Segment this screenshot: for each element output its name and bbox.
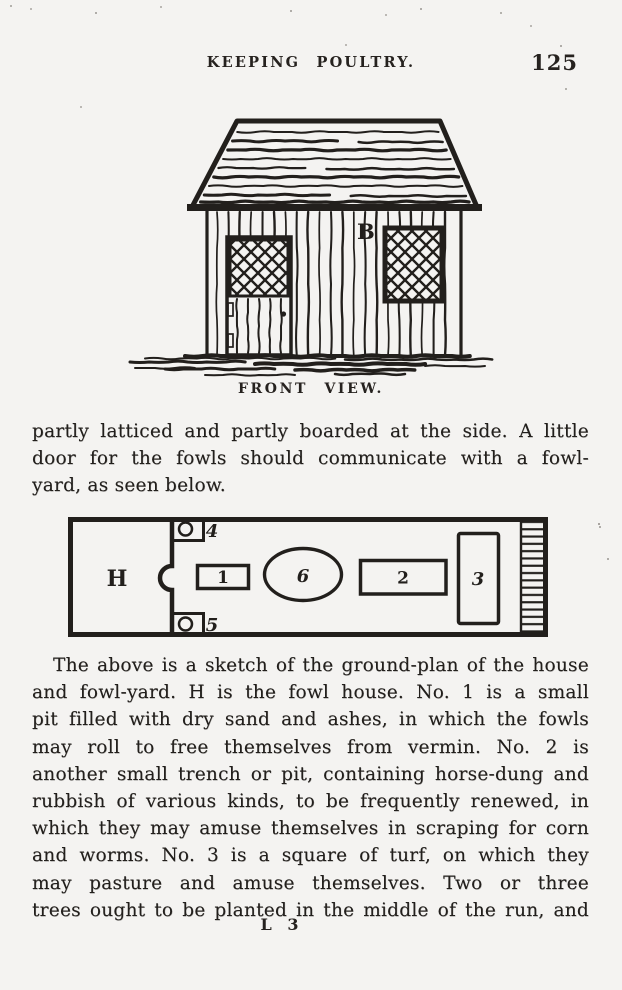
figure-stroke	[201, 201, 469, 202]
figure-stroke	[359, 141, 443, 142]
scan-speckles	[10, 5, 12, 7]
figure-stroke	[216, 212, 217, 356]
plan-label-3: 3	[472, 569, 485, 590]
figure-stroke	[342, 212, 343, 356]
text-line: pit filled with dry sand and ashes, in w…	[32, 706, 589, 733]
plan-label-4: 4	[206, 521, 219, 542]
plan-label-6: 6	[297, 566, 310, 587]
figure-stroke	[326, 168, 453, 169]
signature-text: L 3	[261, 915, 304, 934]
figure-caption-front-view: FRONT VIEW.	[0, 381, 622, 397]
signature-mark: L 3	[0, 915, 622, 934]
ground-shadow	[130, 355, 492, 375]
hatched-gate-strip	[521, 520, 546, 635]
plan-label-5: 5	[206, 615, 219, 636]
figure-stroke	[165, 368, 275, 370]
figure-stroke	[330, 212, 331, 356]
figure-stroke	[353, 212, 354, 356]
window-lattice	[385, 228, 442, 301]
ground-plan-figure: H 4 5 1 6 2 3	[64, 511, 552, 643]
door-lattice	[230, 240, 288, 296]
paragraph-2: The above is a sketch of the ground-plan…	[32, 652, 589, 924]
book-page: KEEPING POULTRY. 125	[0, 0, 622, 990]
running-head: KEEPING POULTRY.	[0, 54, 622, 80]
text-line: and fowl-yard. H is the fowl house. No. …	[32, 679, 589, 706]
figure-stroke	[145, 358, 335, 359]
figure-stroke	[295, 370, 415, 371]
text-line: The above is a sketch of the ground-plan…	[32, 652, 589, 679]
figure-stroke	[130, 361, 245, 362]
text-line: partly latticed and partly boarded at th…	[32, 418, 589, 445]
plan-label-1: 1	[217, 568, 229, 588]
figure-stroke	[209, 185, 462, 187]
plan-label-2: 2	[397, 569, 409, 589]
plan-label-house-h: H	[107, 566, 128, 592]
text-line: door for the fowls should communicate wi…	[32, 445, 589, 472]
figure-stroke	[255, 363, 425, 364]
building-label-b: B	[357, 219, 375, 244]
figure-stroke	[233, 141, 338, 142]
text-line: yard, as seen below.	[32, 472, 589, 499]
figure-stroke	[205, 374, 295, 375]
figure-stroke	[335, 373, 405, 374]
text-line: and worms. No. 3 is a square of turf, on…	[32, 842, 589, 869]
figure-stroke	[204, 194, 329, 195]
text-line: rubbish of various kinds, to be frequent…	[32, 788, 589, 815]
figure-stroke	[345, 359, 492, 360]
figure-stroke	[319, 212, 320, 356]
text-line: which they may amuse themselves in scrap…	[32, 815, 589, 842]
text-line: another small trench or pit, containing …	[32, 761, 589, 788]
figure-stroke	[351, 195, 466, 197]
figure-stroke	[258, 299, 259, 353]
door	[227, 237, 291, 355]
figure-stroke	[214, 176, 459, 177]
page-number: 125	[531, 50, 578, 75]
door-handle	[281, 311, 286, 316]
poultry-house-front-view-figure: B	[125, 112, 497, 380]
figure-stroke	[296, 212, 298, 356]
roof	[187, 121, 482, 211]
figure-stroke	[185, 355, 470, 357]
text-line: may pasture and amuse themselves. Two or…	[32, 870, 589, 897]
figure-stroke	[228, 149, 446, 151]
figure-stroke	[425, 365, 485, 366]
eave-bar	[187, 204, 482, 211]
figure-stroke	[307, 212, 308, 356]
paragraph-1: partly latticed and partly boarded at th…	[32, 418, 589, 500]
text-line: may roll to free themselves from vermin.…	[32, 734, 589, 761]
figure-stroke	[376, 212, 377, 356]
window	[385, 228, 442, 301]
